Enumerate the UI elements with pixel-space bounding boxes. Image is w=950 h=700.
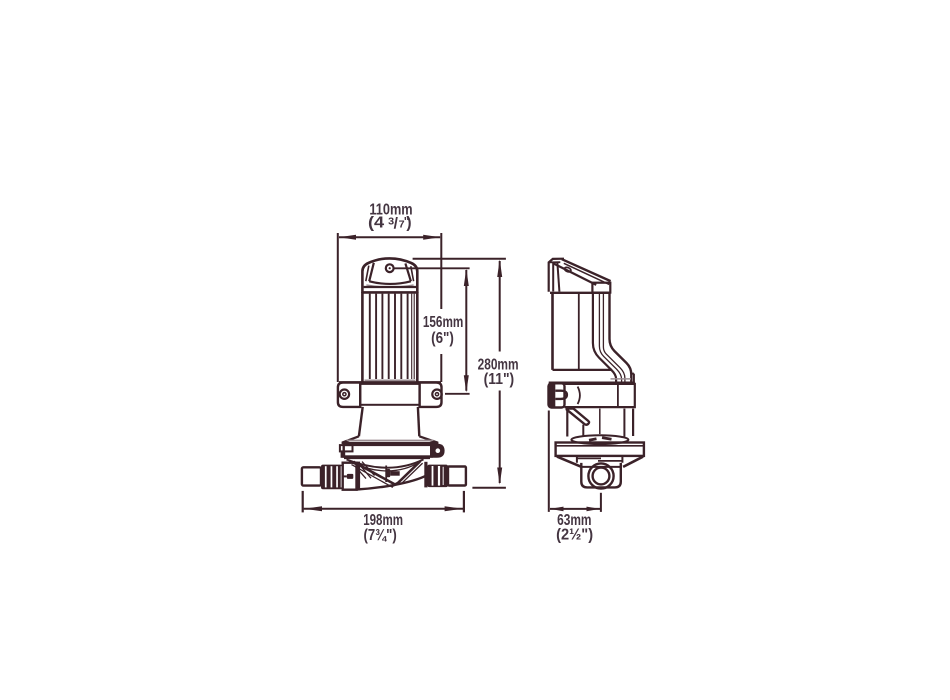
svg-text:156mm: 156mm — [423, 314, 463, 331]
svg-text:(7¾"): (7¾") — [363, 527, 396, 544]
svg-text:(6"): (6") — [431, 330, 454, 347]
svg-text:(2½"): (2½") — [556, 526, 593, 543]
svg-text:): ) — [406, 214, 411, 231]
svg-text:(11"): (11") — [484, 371, 515, 388]
svg-text:(4: (4 — [368, 214, 385, 231]
